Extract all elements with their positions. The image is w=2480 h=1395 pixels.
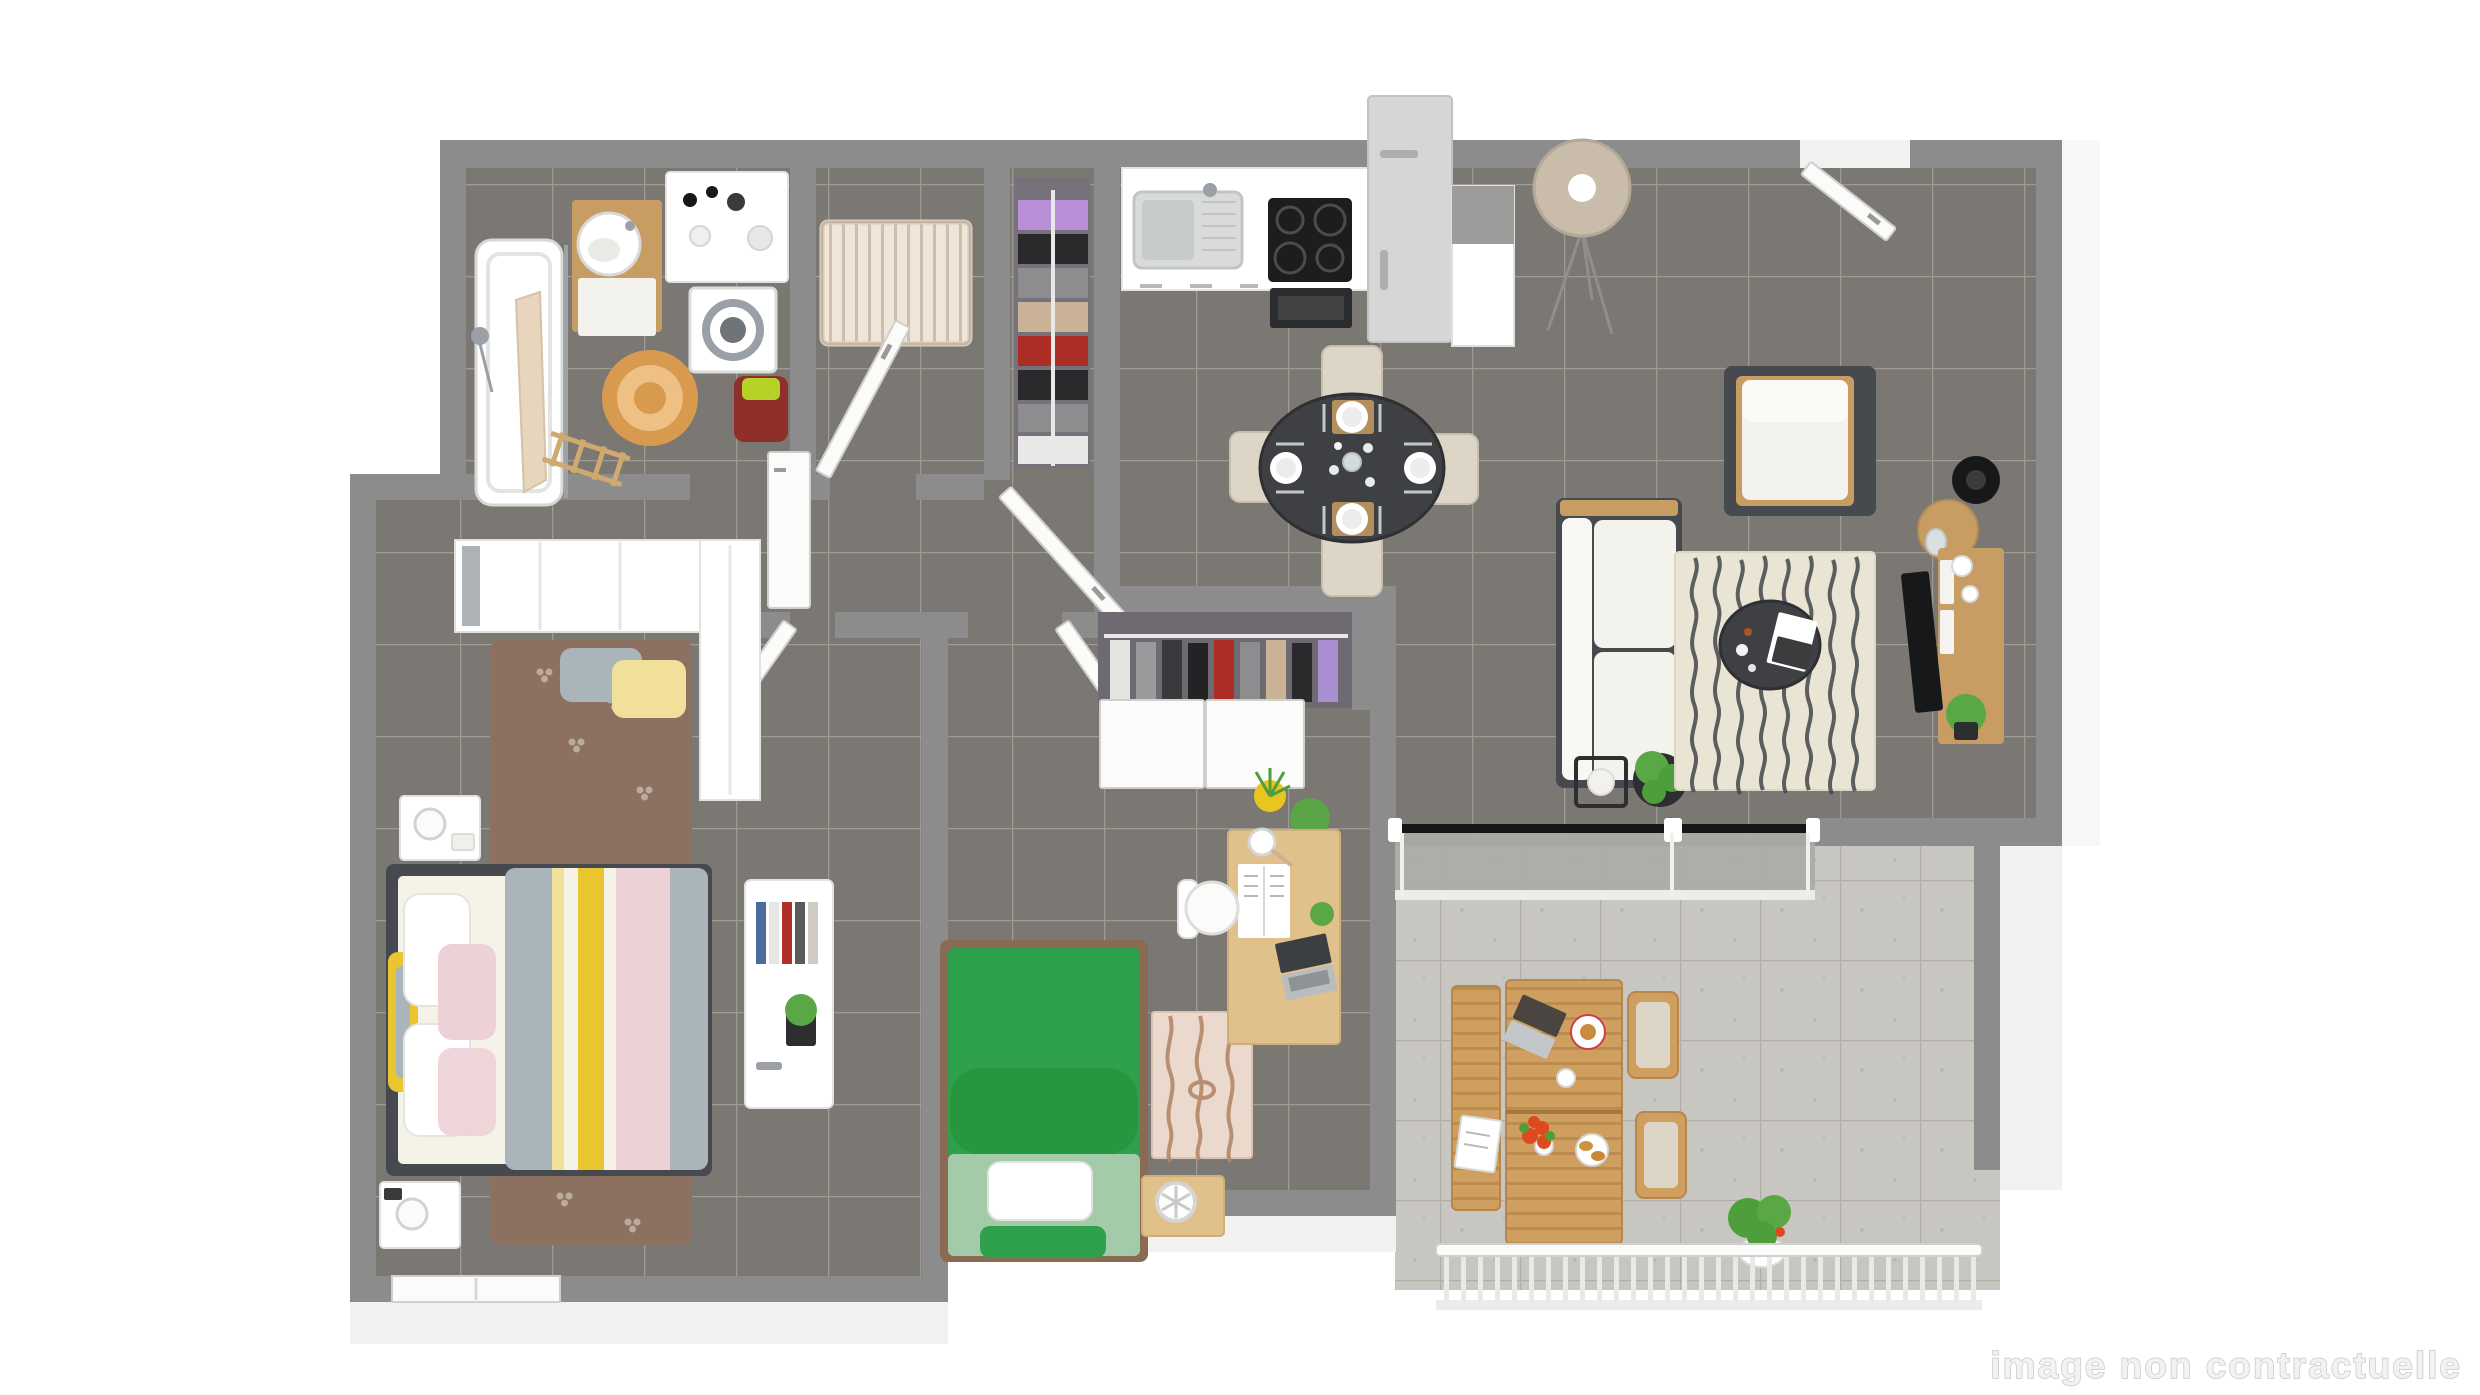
wall-west-bedroom <box>350 474 376 1302</box>
lamp-bulb-icon <box>1568 174 1596 202</box>
wall-hall-south-b <box>835 612 922 638</box>
entry-doorway <box>1800 140 1910 168</box>
sofa <box>1556 498 1682 788</box>
chrome-item <box>756 1062 782 1070</box>
sink-basin <box>1142 200 1194 260</box>
wall-bedroom2-north-a <box>948 612 968 638</box>
croissant <box>1579 1141 1593 1151</box>
wall-living-south-east <box>1815 818 2036 846</box>
wardrobe-mirror <box>462 546 480 626</box>
closet-sliding-door-2 <box>1206 700 1304 788</box>
nightstand-south <box>380 1182 460 1248</box>
duvet <box>505 868 708 1170</box>
nightstand-north <box>400 796 480 860</box>
dresser <box>745 880 833 1108</box>
tv-plant-pot <box>1954 722 1978 740</box>
glass-door-track <box>1393 824 1815 833</box>
bedside-lamp <box>415 809 445 839</box>
cup <box>1557 1069 1575 1087</box>
outdoor-bench <box>1452 986 1500 1210</box>
sofa-seat-1 <box>1594 520 1676 648</box>
washer-drum <box>720 317 746 343</box>
fridge-handle-2 <box>1380 250 1388 290</box>
sofa-back-cushions <box>1562 518 1592 780</box>
plate <box>1576 1134 1608 1166</box>
railing-top-rail <box>1436 1244 1982 1256</box>
wall-dressing-kitchen <box>1094 166 1120 612</box>
plant-leaves-icon <box>1642 780 1666 804</box>
coral-decor-icon <box>1952 556 1972 576</box>
door-handle-icon <box>774 468 786 472</box>
toiletry-tray <box>748 226 772 250</box>
toiletry-jar <box>727 193 745 211</box>
decor-item <box>1744 628 1752 636</box>
candle <box>1736 644 1748 656</box>
watermark-text: image non contractuelle <box>1990 1345 2462 1386</box>
pink-pillow <box>438 1048 496 1136</box>
wall-south-nursery-b <box>916 474 984 500</box>
faucet <box>625 221 635 231</box>
wall-east <box>2036 140 2062 846</box>
glass-door-jamb <box>1388 818 1402 842</box>
floor-plan-svg: image non contractuelle <box>0 0 2480 1395</box>
bathroom-parked-door <box>768 452 810 608</box>
croissant <box>1591 1151 1605 1161</box>
island-top <box>1452 186 1514 244</box>
closet-clothes <box>1104 636 1348 702</box>
floor-plan-render: image non contractuelle <box>0 0 2480 1395</box>
wall-bathroom-nursery <box>790 166 816 500</box>
coral-decor-icon <box>1962 586 1978 602</box>
glass <box>1329 465 1339 475</box>
bedside-table-fan <box>1142 1176 1224 1236</box>
wall-west-bathroom <box>440 140 466 500</box>
glass <box>1365 477 1375 487</box>
candle <box>1748 664 1756 672</box>
alarm-clock-icon <box>384 1188 402 1200</box>
book <box>452 834 474 850</box>
kitchen-faucet <box>1203 183 1217 197</box>
wall-bedroom2-east <box>1370 612 1396 1216</box>
tv-stand-drawer <box>1940 610 1954 654</box>
cabinet-handles <box>1140 284 1258 288</box>
pink-pillow <box>438 944 496 1040</box>
green-pillow <box>980 1226 1106 1258</box>
toiletry-bottle <box>683 193 697 207</box>
duvet-fold <box>950 1068 1138 1154</box>
toiletry-bottle <box>706 186 718 198</box>
sliding-glass-door <box>1388 818 1820 900</box>
mirror-wardrobe <box>455 540 701 632</box>
desk-chair-seat <box>1186 882 1238 934</box>
bedside-lamp <box>397 1199 427 1229</box>
pillow <box>988 1162 1092 1220</box>
chair-cushion <box>1644 1122 1678 1188</box>
candle <box>1334 442 1342 450</box>
fridge-handle <box>1380 150 1418 158</box>
glass <box>1363 443 1373 453</box>
dresser-plant <box>785 994 817 1026</box>
shower-handset-icon <box>471 327 489 345</box>
wall-terrace-east <box>1974 846 2000 1170</box>
armchair-back-cushion <box>1742 380 1848 422</box>
closet-sliding-door-1 <box>1100 700 1204 788</box>
basin-inner <box>588 238 620 262</box>
towel-on-chair <box>742 378 780 400</box>
books-row <box>756 902 818 964</box>
desk-plant <box>1310 902 1334 926</box>
white-pot <box>1588 769 1614 795</box>
vanity-drawers <box>578 278 656 336</box>
double-bed <box>386 864 712 1176</box>
pancakes <box>1580 1024 1596 1040</box>
coffee-table <box>1720 601 1820 689</box>
chair-cushion <box>1636 1002 1670 1068</box>
plant-flower <box>1775 1227 1785 1237</box>
glass-door-sill <box>1395 890 1815 900</box>
bench-magazine <box>1455 1115 1502 1172</box>
jute-rug-center <box>634 382 666 414</box>
soap-dish <box>690 226 710 246</box>
single-bed <box>940 940 1148 1262</box>
table-lamp-top <box>1966 470 1986 490</box>
wall-nursery-dressing <box>984 166 1010 480</box>
toiletry-counter <box>666 172 788 282</box>
carafe <box>1343 453 1361 471</box>
fridge <box>1368 96 1452 342</box>
oven-glass <box>1278 296 1344 320</box>
floor-cushion <box>612 660 686 718</box>
armchair <box>1724 366 1876 516</box>
desk-lamp <box>1249 829 1275 855</box>
